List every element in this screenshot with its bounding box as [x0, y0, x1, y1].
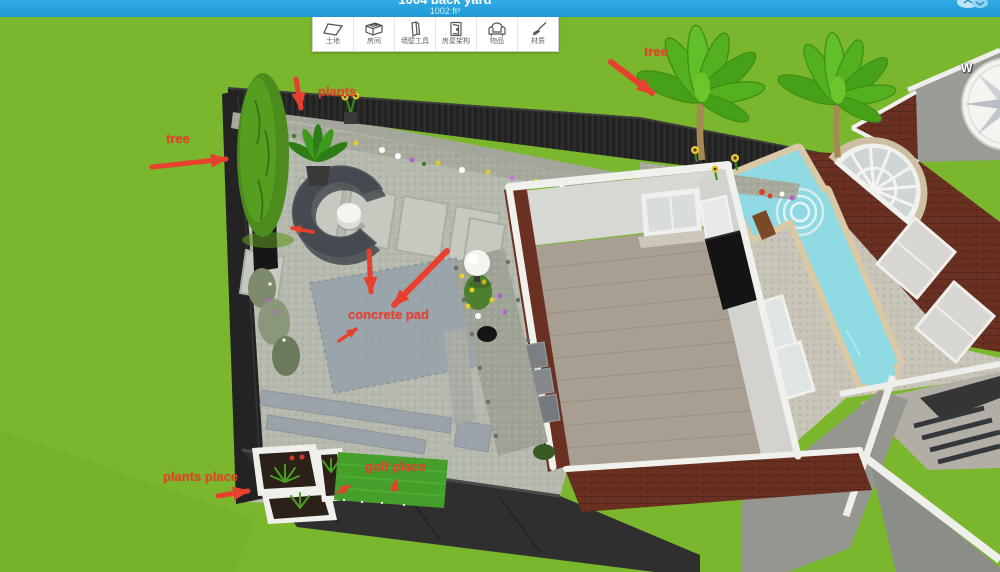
room-icon — [362, 20, 386, 38]
raised-planter-beds — [252, 444, 348, 524]
arrow-pad-down — [369, 251, 371, 292]
scene-3d-viewport[interactable] — [0, 0, 1000, 572]
tool-structure[interactable]: 房屋架构 — [436, 17, 477, 51]
area-label: 1002 ft² — [360, 6, 530, 16]
tool-label: 土地 — [326, 38, 340, 46]
tool-label: 房间 — [367, 38, 381, 46]
arrow-golf-2 — [394, 481, 396, 491]
tool-label: 材质 — [531, 38, 545, 46]
compass-west-label: W — [961, 61, 972, 75]
main-toolbar: 土地 房间 墙壁工具 房屋架构 — [312, 17, 559, 52]
wall-tools-icon — [403, 20, 427, 38]
tool-label: 物品 — [490, 38, 504, 46]
app-window: 1004 back yard 1002 ft² 土地 房间 墙壁工具 — [0, 0, 1000, 572]
tool-room[interactable]: 房间 — [354, 17, 395, 51]
annotation-plants-place: plants place — [163, 470, 238, 484]
house-structure-icon — [444, 20, 468, 38]
cloud-icon[interactable] — [952, 0, 992, 15]
tool-land[interactable]: 土地 — [313, 17, 354, 51]
items-icon — [485, 20, 509, 38]
tool-label: 房屋架构 — [442, 38, 470, 46]
materials-icon — [526, 20, 550, 38]
annotation-golf-place: golf place — [365, 460, 426, 474]
tool-materials[interactable]: 材质 — [518, 17, 558, 51]
tool-wall[interactable]: 墙壁工具 — [395, 17, 436, 51]
annotation-concrete-pad: concrete pad — [348, 308, 429, 322]
tool-items[interactable]: 物品 — [477, 17, 518, 51]
annotation-plants: plants — [318, 85, 356, 99]
black-pot — [477, 326, 497, 342]
annotation-tree-right: tree — [644, 45, 668, 59]
land-icon — [321, 20, 345, 38]
room-window — [638, 188, 707, 248]
annotation-tree-left: tree — [166, 132, 190, 146]
project-title-block: 1004 back yard 1002 ft² — [360, 0, 530, 16]
tool-label: 墙壁工具 — [401, 38, 429, 46]
